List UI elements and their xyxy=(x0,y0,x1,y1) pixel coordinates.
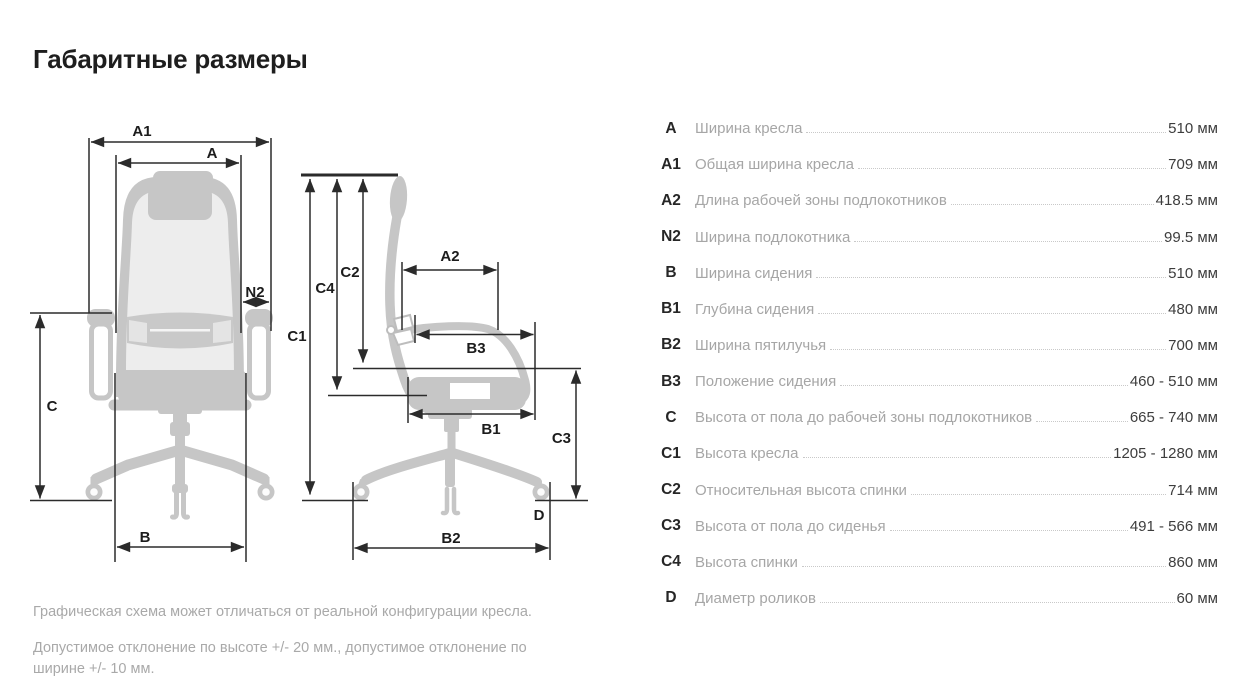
dotted-leader xyxy=(911,494,1166,495)
side-chair-illustration xyxy=(353,175,550,513)
dimension-code: C xyxy=(655,410,687,426)
side-view-diagram: C1 C4 C2 A2 B3 B1 C3 D B2 xyxy=(290,105,600,575)
front-lumbar-line xyxy=(150,329,210,332)
side-seat-gap xyxy=(450,383,490,399)
side-dim-label-c2: C2 xyxy=(340,264,359,281)
front-column-top xyxy=(173,402,187,424)
dimension-label: Общая ширина кресла xyxy=(695,157,854,172)
dimension-label: Высота кресла xyxy=(695,446,799,461)
spec-row: B3Положение сидения460 - 510 мм xyxy=(655,361,1218,397)
dimension-label: Ширина сидения xyxy=(695,266,812,281)
note-schema-disclaimer: Графическая схема может отличаться от ре… xyxy=(33,602,578,623)
spec-row: C3Высота от пола до сиденья491 - 566 мм xyxy=(655,506,1218,542)
dimension-value: 709 мм xyxy=(1168,157,1218,172)
dimension-code: C3 xyxy=(655,518,687,534)
side-dim-label-c4: C4 xyxy=(315,280,335,297)
dotted-leader xyxy=(806,132,1166,133)
side-dim-label-c3: C3 xyxy=(552,430,571,447)
side-caster-front-hub xyxy=(537,488,545,496)
dimension-value: 99.5 мм xyxy=(1164,230,1218,245)
dotted-leader xyxy=(816,277,1166,278)
dotted-leader xyxy=(858,168,1166,169)
dimension-code: A1 xyxy=(655,157,687,173)
spec-row: A2Длина рабочей зоны подлокотников418.5 … xyxy=(655,180,1218,216)
spec-table: AШирина кресла510 ммA1Общая ширина кресл… xyxy=(655,108,1218,614)
dimension-value: 700 мм xyxy=(1168,338,1218,353)
front-dim-label-a: A xyxy=(207,145,218,162)
dimension-label: Глубина сидения xyxy=(695,302,814,317)
side-dim-label-b1: B1 xyxy=(481,421,500,438)
front-armrest-right-post xyxy=(250,324,269,398)
dotted-leader xyxy=(802,566,1166,567)
side-armrest-bracket-lower xyxy=(393,329,414,345)
dotted-leader xyxy=(830,349,1166,350)
dimension-value: 714 мм xyxy=(1168,483,1218,498)
front-seat xyxy=(118,370,246,402)
dimension-code: B xyxy=(655,265,687,281)
dotted-leader xyxy=(951,204,1154,205)
side-leg-front xyxy=(453,453,537,482)
side-dim-label-c1: C1 xyxy=(287,328,306,345)
dimension-code: N2 xyxy=(655,229,687,245)
front-caster-left-hub xyxy=(90,488,98,496)
dimension-value: 860 мм xyxy=(1168,555,1218,570)
dimension-value: 460 - 510 мм xyxy=(1130,374,1218,389)
dimension-code: D xyxy=(655,590,687,606)
front-dim-label-a1: A1 xyxy=(132,123,151,140)
side-dim-label-b3: B3 xyxy=(466,340,485,357)
dimension-code: A2 xyxy=(655,193,687,209)
notes: Графическая схема может отличаться от ре… xyxy=(33,602,578,695)
dotted-leader xyxy=(1036,421,1128,422)
dotted-leader xyxy=(803,457,1112,458)
front-fork-prong-right xyxy=(184,491,188,517)
side-dim-label-b2: B2 xyxy=(441,530,460,547)
dimension-code: C4 xyxy=(655,554,687,570)
side-dim-label-a2: A2 xyxy=(440,248,459,265)
dimension-label: Ширина кресла xyxy=(695,121,802,136)
dimension-code: C1 xyxy=(655,446,687,462)
dimension-value: 480 мм xyxy=(1168,302,1218,317)
dimension-label: Длина рабочей зоны подлокотников xyxy=(695,193,947,208)
front-leg-center xyxy=(175,446,185,488)
side-fork-stem xyxy=(445,450,455,487)
dimension-label: Высота от пола до рабочей зоны подлокотн… xyxy=(695,410,1032,425)
dotted-leader xyxy=(890,530,1128,531)
spec-row: BШирина сидения510 мм xyxy=(655,253,1218,289)
front-dim-label-n2: N2 xyxy=(245,284,264,301)
front-view-diagram: A1 A N2 C B xyxy=(30,105,320,575)
side-fork-prong-left xyxy=(443,489,447,513)
dimension-code: B3 xyxy=(655,374,687,390)
dimension-value: 1205 - 1280 мм xyxy=(1113,446,1218,461)
dimension-value: 510 мм xyxy=(1168,121,1218,136)
dimension-value: 510 мм xyxy=(1168,266,1218,281)
note-tolerance: Допустимое отклонение по высоте +/- 20 м… xyxy=(33,638,578,680)
dotted-leader xyxy=(820,602,1175,603)
dotted-leader xyxy=(818,313,1166,314)
dimension-code: A xyxy=(655,121,687,137)
front-leg-right xyxy=(180,450,264,479)
spec-row: B1Глубина сидения480 мм xyxy=(655,289,1218,325)
dimension-code: B2 xyxy=(655,337,687,353)
front-lumbar-right-panel xyxy=(213,320,231,343)
page-title: Габаритные размеры xyxy=(33,44,308,75)
spec-row: C2Относительная высота спинки714 мм xyxy=(655,469,1218,505)
front-armrest-left-post xyxy=(92,324,111,398)
side-dimension-lines xyxy=(301,175,588,560)
spec-row: C1Высота кресла1205 - 1280 мм xyxy=(655,433,1218,469)
side-caster-rear-hub xyxy=(357,488,365,496)
dimension-label: Относительная высота спинки xyxy=(695,483,907,498)
side-armrest-knob xyxy=(387,326,395,334)
spec-row: DДиаметр роликов60 мм xyxy=(655,578,1218,614)
front-caster-right-hub xyxy=(262,488,270,496)
front-column-joint xyxy=(170,422,190,436)
dimension-label: Ширина пятилучья xyxy=(695,338,826,353)
spec-row: A1Общая ширина кресла709 мм xyxy=(655,144,1218,180)
dotted-leader xyxy=(854,241,1162,242)
front-leg-left xyxy=(96,450,180,479)
dotted-leader xyxy=(840,385,1128,386)
spec-row: CВысота от пола до рабочей зоны подлокот… xyxy=(655,397,1218,433)
spec-row: AШирина кресла510 мм xyxy=(655,108,1218,144)
side-fork-prong-right xyxy=(454,489,458,513)
spec-row: B2Ширина пятилучья700 мм xyxy=(655,325,1218,361)
front-dim-label-c: C xyxy=(47,398,58,415)
front-dim-label-b: B xyxy=(140,529,151,546)
dimension-code: C2 xyxy=(655,482,687,498)
dimension-code: B1 xyxy=(655,301,687,317)
side-column-top xyxy=(444,415,459,432)
dimension-value: 491 - 566 мм xyxy=(1130,519,1218,534)
front-fork-prong-left xyxy=(173,491,177,517)
dimension-label: Ширина подлокотника xyxy=(695,230,850,245)
dimension-value: 418.5 мм xyxy=(1156,193,1218,208)
side-dim-label-d: D xyxy=(534,507,545,524)
dimension-value: 665 - 740 мм xyxy=(1130,410,1218,425)
dimension-label: Высота от пола до сиденья xyxy=(695,519,886,534)
dimension-label: Высота спинки xyxy=(695,555,798,570)
front-lumbar-left-panel xyxy=(129,320,147,343)
front-headrest-pad xyxy=(148,187,212,220)
side-leg-rear xyxy=(366,453,450,480)
spec-row: C4Высота спинки860 мм xyxy=(655,542,1218,578)
dimension-value: 60 мм xyxy=(1177,591,1218,606)
spec-row: N2Ширина подлокотника99.5 мм xyxy=(655,216,1218,252)
dimension-label: Диаметр роликов xyxy=(695,591,816,606)
dimension-label: Положение сидения xyxy=(695,374,836,389)
